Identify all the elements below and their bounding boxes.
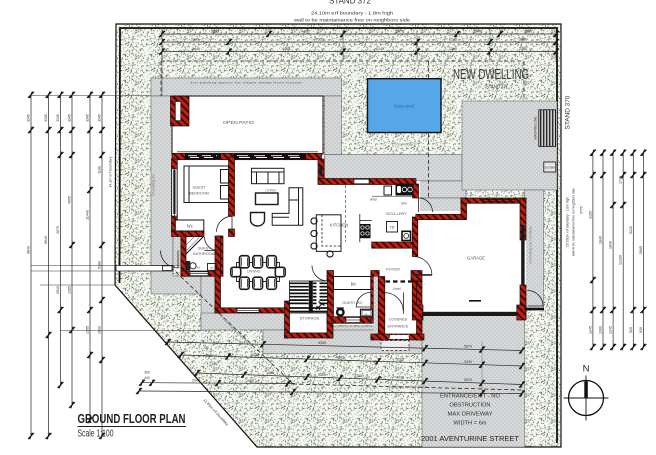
svg-text:3345: 3345 bbox=[86, 114, 90, 122]
svg-text:1245: 1245 bbox=[609, 326, 613, 334]
svg-text:Scale 1:100: Scale 1:100 bbox=[78, 429, 114, 440]
svg-text:1355: 1355 bbox=[86, 326, 90, 334]
svg-text:14.2m erf boundary: 14.2m erf boundary bbox=[109, 156, 113, 187]
svg-text:12160: 12160 bbox=[619, 255, 623, 265]
svg-text:4460: 4460 bbox=[282, 47, 290, 51]
svg-text:DINING: DINING bbox=[247, 270, 260, 274]
svg-text:5570: 5570 bbox=[464, 345, 472, 349]
svg-text:3345: 3345 bbox=[27, 114, 31, 122]
svg-text:no parking in building zone: no parking in building zone bbox=[389, 385, 427, 389]
svg-text:5570: 5570 bbox=[464, 378, 472, 382]
svg-text:1720: 1720 bbox=[619, 176, 623, 184]
svg-text:STAND 370: STAND 370 bbox=[565, 95, 572, 129]
svg-text:ENTRANCE: ENTRANCE bbox=[388, 325, 409, 329]
svg-text:2001 AVENTURINE STREET: 2001 AVENTURINE STREET bbox=[421, 434, 519, 443]
svg-text:930: 930 bbox=[639, 327, 643, 333]
svg-text:WIDTH = 6m: WIDTH = 6m bbox=[454, 421, 487, 427]
svg-text:STORAGE: STORAGE bbox=[300, 316, 320, 321]
svg-text:11440: 11440 bbox=[86, 210, 90, 220]
svg-text:2800: 2800 bbox=[98, 326, 102, 334]
svg-text:3460: 3460 bbox=[524, 30, 532, 34]
svg-text:wc: wc bbox=[197, 266, 201, 270]
svg-text:3165: 3165 bbox=[588, 211, 592, 219]
svg-text:TD: TD bbox=[390, 226, 395, 230]
svg-text:7150: 7150 bbox=[316, 38, 324, 42]
svg-text:future pool: future pool bbox=[394, 104, 414, 109]
svg-text:MAX DRIVEWAY: MAX DRIVEWAY bbox=[448, 412, 494, 418]
svg-text:5865: 5865 bbox=[639, 246, 643, 254]
svg-text:1300: 1300 bbox=[599, 326, 603, 334]
svg-text:1960: 1960 bbox=[246, 379, 254, 383]
svg-text:5775: 5775 bbox=[580, 206, 584, 214]
svg-text:bs: bs bbox=[210, 266, 214, 270]
svg-text:lintel: lintel bbox=[394, 287, 401, 291]
svg-text:3070: 3070 bbox=[396, 30, 404, 34]
svg-text:2m building line / servitude: 2m building line / servitude bbox=[529, 226, 533, 264]
svg-text:230: 230 bbox=[203, 346, 209, 350]
svg-text:3345: 3345 bbox=[98, 114, 102, 122]
svg-text:STAND 372: STAND 372 bbox=[329, 0, 372, 6]
svg-text:4460: 4460 bbox=[301, 30, 309, 34]
svg-text:2m building line: 2m building line bbox=[152, 174, 156, 196]
svg-text:1100: 1100 bbox=[98, 166, 102, 174]
svg-text:N: N bbox=[583, 364, 590, 375]
svg-text:wall to be maintainance free o: wall to be maintainance free on neighbor… bbox=[294, 18, 411, 23]
svg-text:ENTRANCE/EXIT - NO: ENTRANCE/EXIT - NO bbox=[440, 394, 500, 400]
svg-text:2145: 2145 bbox=[449, 38, 457, 42]
svg-text:9355: 9355 bbox=[318, 341, 326, 345]
svg-text:6435: 6435 bbox=[251, 353, 259, 357]
svg-text:DUSTBIN: DUSTBIN bbox=[545, 167, 555, 170]
svg-text:24.10m erf boundary - 1.8m hig: 24.10m erf boundary - 1.8m high bbox=[311, 11, 394, 16]
svg-text:9070: 9070 bbox=[396, 376, 404, 380]
svg-text:2145: 2145 bbox=[376, 47, 384, 51]
svg-text:GUEST: GUEST bbox=[197, 247, 211, 251]
svg-text:1295: 1295 bbox=[266, 371, 274, 375]
svg-text:440: 440 bbox=[211, 362, 217, 366]
svg-text:1355: 1355 bbox=[68, 286, 72, 294]
svg-text:1360: 1360 bbox=[449, 47, 457, 51]
svg-text:lintel: lintel bbox=[370, 198, 377, 202]
svg-text:1245: 1245 bbox=[588, 326, 592, 334]
svg-text:3345: 3345 bbox=[44, 114, 48, 122]
svg-text:2040: 2040 bbox=[192, 379, 200, 383]
svg-text:LIVING: LIVING bbox=[265, 189, 276, 193]
svg-text:b/c: b/c bbox=[187, 224, 193, 229]
svg-text:BATHROOM: BATHROOM bbox=[193, 252, 215, 256]
svg-text:FOYER: FOYER bbox=[386, 267, 400, 272]
svg-text:SCULLERY: SCULLERY bbox=[386, 211, 407, 216]
svg-text:230: 230 bbox=[207, 354, 213, 358]
svg-text:5885: 5885 bbox=[211, 30, 219, 34]
svg-text:2670: 2670 bbox=[56, 226, 60, 234]
svg-text:b/c: b/c bbox=[351, 281, 357, 286]
svg-text:3910: 3910 bbox=[56, 286, 60, 294]
svg-text:1200: 1200 bbox=[396, 358, 404, 362]
svg-text:1840: 1840 bbox=[609, 241, 613, 249]
svg-text:9640: 9640 bbox=[44, 236, 48, 244]
svg-text:440: 440 bbox=[144, 376, 150, 380]
svg-text:20.7(8)m erf boundary - 1.8m h: 20.7(8)m erf boundary - 1.8m high bbox=[566, 197, 570, 247]
svg-text:4145: 4145 bbox=[336, 356, 344, 360]
svg-text:NEW DWELLING: NEW DWELLING bbox=[453, 67, 529, 83]
svg-text:GROUND FLOOR PLAN: GROUND FLOOR PLAN bbox=[78, 411, 186, 426]
svg-text:4005: 4005 bbox=[68, 196, 72, 204]
svg-text:5180: 5180 bbox=[98, 261, 102, 269]
svg-text:3345: 3345 bbox=[68, 114, 72, 122]
svg-text:OBSTRUCTION: OBSTRUCTION bbox=[450, 403, 491, 409]
svg-text:2145: 2145 bbox=[354, 374, 362, 378]
svg-text:2340: 2340 bbox=[519, 47, 527, 51]
svg-text:WASHING LINE: WASHING LINE bbox=[533, 116, 537, 139]
svg-text:1m paving apron for slope away: 1m paving apron for slope away from hous… bbox=[190, 81, 302, 85]
svg-text:2440: 2440 bbox=[192, 47, 200, 51]
svg-text:9220: 9220 bbox=[629, 226, 633, 234]
svg-text:STAND 371: STAND 371 bbox=[486, 85, 508, 91]
svg-text:2440: 2440 bbox=[474, 30, 482, 34]
svg-text:COVERED: COVERED bbox=[389, 318, 408, 322]
svg-text:sink: sink bbox=[401, 202, 407, 206]
svg-text:350: 350 bbox=[144, 371, 150, 375]
svg-text:GUEST WC: GUEST WC bbox=[342, 301, 363, 305]
svg-text:2440: 2440 bbox=[191, 38, 199, 42]
svg-text:OPEN PATIO: OPEN PATIO bbox=[223, 120, 255, 125]
svg-text:BEDROOM: BEDROOM bbox=[189, 192, 209, 196]
svg-text:GUEST: GUEST bbox=[192, 186, 206, 190]
svg-text:9840: 9840 bbox=[27, 246, 31, 254]
svg-text:3340: 3340 bbox=[464, 360, 472, 364]
svg-text:920: 920 bbox=[629, 327, 633, 333]
svg-text:2205: 2205 bbox=[318, 373, 326, 377]
svg-text:wall to be maintainance free o: wall to be maintainance free on neighbor… bbox=[572, 188, 576, 256]
svg-text:3860: 3860 bbox=[519, 38, 527, 42]
svg-text:(natural lawn): (natural lawn) bbox=[394, 143, 416, 147]
svg-text:3345: 3345 bbox=[56, 114, 60, 122]
svg-text:GARAGE: GARAGE bbox=[467, 256, 485, 261]
svg-text:1840: 1840 bbox=[599, 236, 603, 244]
